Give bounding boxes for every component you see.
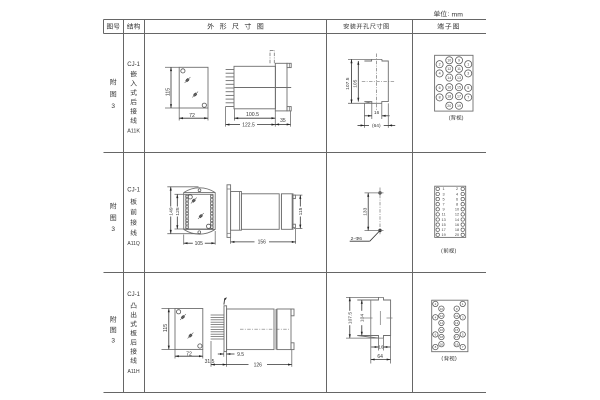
svg-text:11: 11 xyxy=(457,67,461,71)
svg-text:8: 8 xyxy=(456,203,458,207)
svg-text:11: 11 xyxy=(442,213,446,217)
svg-text:19: 19 xyxy=(455,342,459,346)
svg-text:104: 104 xyxy=(360,314,366,322)
svg-text:16: 16 xyxy=(379,345,384,350)
svg-text:156: 156 xyxy=(258,240,267,246)
svg-text:16: 16 xyxy=(455,223,459,227)
svg-text:15: 15 xyxy=(455,328,459,332)
svg-text:31.5: 31.5 xyxy=(205,359,215,365)
svg-text:(: ( xyxy=(449,115,451,121)
svg-text:1: 1 xyxy=(443,187,445,191)
svg-text::: : xyxy=(448,11,450,18)
svg-text:A11Q: A11Q xyxy=(127,241,140,247)
svg-text:10: 10 xyxy=(455,208,459,212)
svg-text:149: 149 xyxy=(168,207,174,215)
svg-text:17: 17 xyxy=(455,335,459,339)
svg-text:): ) xyxy=(462,115,464,121)
svg-text:CJ-1: CJ-1 xyxy=(127,292,140,298)
svg-text:4: 4 xyxy=(456,192,458,196)
svg-text:9: 9 xyxy=(458,59,460,63)
svg-text:72: 72 xyxy=(186,351,192,357)
svg-text:9.5: 9.5 xyxy=(237,352,244,358)
svg-text:15: 15 xyxy=(441,223,445,227)
svg-text:CJ-1: CJ-1 xyxy=(127,62,140,68)
svg-text:107.5: 107.5 xyxy=(348,312,354,325)
svg-text:122.5: 122.5 xyxy=(242,123,255,129)
svg-text:3: 3 xyxy=(467,72,469,76)
svg-text:7: 7 xyxy=(467,96,469,100)
svg-text:12: 12 xyxy=(447,67,451,71)
svg-text:CJ-1: CJ-1 xyxy=(127,187,140,193)
svg-text:18: 18 xyxy=(440,335,444,339)
svg-text:13: 13 xyxy=(441,218,445,222)
svg-text:11: 11 xyxy=(455,314,458,318)
svg-text:10: 10 xyxy=(440,307,444,311)
svg-text:Φ6: Φ6 xyxy=(355,236,362,242)
svg-text:115: 115 xyxy=(165,88,171,96)
svg-text:115: 115 xyxy=(163,324,169,332)
svg-text:133: 133 xyxy=(363,207,369,215)
svg-text:126: 126 xyxy=(254,362,263,368)
svg-text:125: 125 xyxy=(175,207,181,215)
svg-text:15: 15 xyxy=(457,85,461,89)
svg-text:115: 115 xyxy=(298,207,304,215)
svg-text:3: 3 xyxy=(111,103,115,110)
svg-text:72: 72 xyxy=(189,113,195,119)
svg-text:3: 3 xyxy=(443,192,445,196)
svg-text:8: 8 xyxy=(439,96,441,100)
svg-text:105: 105 xyxy=(353,79,359,87)
svg-text:14: 14 xyxy=(455,218,459,222)
svg-text:16: 16 xyxy=(447,85,451,89)
svg-text:100.5: 100.5 xyxy=(246,112,259,118)
svg-text:17: 17 xyxy=(457,94,461,98)
svg-text:20: 20 xyxy=(440,342,444,346)
svg-text:17: 17 xyxy=(441,228,445,232)
svg-text:2: 2 xyxy=(439,62,441,66)
svg-text:10: 10 xyxy=(447,59,451,63)
svg-text:(: ( xyxy=(441,356,443,362)
svg-text:13: 13 xyxy=(455,321,459,325)
svg-text:1: 1 xyxy=(467,62,469,66)
svg-text:12: 12 xyxy=(455,213,459,217)
svg-text:(64): (64) xyxy=(372,123,381,129)
svg-text:20: 20 xyxy=(447,104,451,108)
svg-text:105: 105 xyxy=(195,241,204,247)
svg-text:4: 4 xyxy=(439,72,441,76)
svg-text:3: 3 xyxy=(111,226,115,233)
svg-text:6: 6 xyxy=(439,86,441,90)
svg-text:5: 5 xyxy=(443,197,445,201)
svg-text:): ) xyxy=(454,248,456,254)
svg-text:3: 3 xyxy=(111,338,115,345)
svg-text:16: 16 xyxy=(440,328,444,332)
svg-text:18: 18 xyxy=(447,94,451,98)
svg-text:): ) xyxy=(455,356,457,362)
svg-text:14: 14 xyxy=(440,321,444,325)
svg-text:12: 12 xyxy=(440,314,444,318)
svg-text:7: 7 xyxy=(443,203,445,207)
svg-text:A11H: A11H xyxy=(128,369,141,375)
svg-text:35: 35 xyxy=(280,118,286,124)
svg-text:18: 18 xyxy=(455,228,459,232)
svg-text:A11K: A11K xyxy=(127,128,140,134)
svg-text:64: 64 xyxy=(377,354,383,360)
svg-text:mm: mm xyxy=(452,11,464,18)
svg-text:107.5: 107.5 xyxy=(345,77,351,90)
svg-text:9: 9 xyxy=(443,208,445,212)
svg-text:2: 2 xyxy=(456,187,458,191)
svg-text:(: ( xyxy=(441,248,443,254)
svg-text:6: 6 xyxy=(456,197,458,201)
svg-text:13: 13 xyxy=(457,76,461,80)
svg-text:19: 19 xyxy=(441,233,445,237)
svg-text:16: 16 xyxy=(374,110,380,115)
svg-text:5: 5 xyxy=(467,86,469,90)
svg-text:19: 19 xyxy=(457,104,461,108)
svg-text:20: 20 xyxy=(455,233,459,237)
svg-text:14: 14 xyxy=(447,76,451,80)
